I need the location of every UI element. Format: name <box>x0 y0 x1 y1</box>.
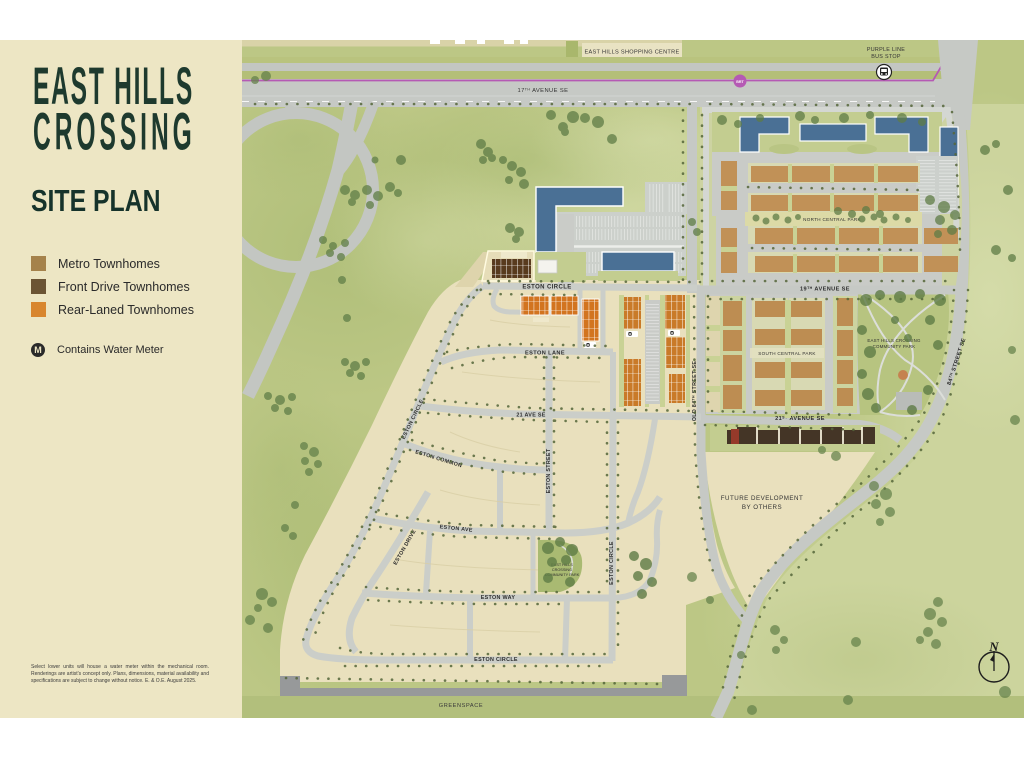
svg-text:M: M <box>629 332 632 336</box>
svg-text:BRT: BRT <box>736 80 744 84</box>
svg-text:M: M <box>587 343 590 347</box>
svg-text:21 AVE SE: 21 AVE SE <box>516 413 545 419</box>
svg-text:COMMUNITY PARK: COMMUNITY PARK <box>873 344 916 349</box>
svg-text:ESTON CIRCLE: ESTON CIRCLE <box>474 657 518 663</box>
svg-text:N: N <box>988 639 999 654</box>
svg-text:GREENSPACE: GREENSPACE <box>439 703 483 709</box>
svg-text:SOUTH CENTRAL PARK: SOUTH CENTRAL PARK <box>758 351 816 356</box>
svg-text:BY OTHERS: BY OTHERS <box>742 504 782 511</box>
svg-text:ESTON STREET: ESTON STREET <box>546 448 552 493</box>
svg-text:EAST HILLS CROSSING: EAST HILLS CROSSING <box>867 338 921 343</box>
svg-text:ESTON CIRCLE: ESTON CIRCLE <box>609 541 615 585</box>
svg-text:ESTON WAY: ESTON WAY <box>481 595 516 601</box>
svg-text:CROSSING: CROSSING <box>552 568 572 572</box>
svg-text:FUTURE DEVELOPMENT: FUTURE DEVELOPMENT <box>721 495 804 502</box>
svg-text:M: M <box>671 331 674 335</box>
svg-text:BUS STOP: BUS STOP <box>871 54 901 60</box>
svg-text:EAST HILLS SHOPPING CENTRE: EAST HILLS SHOPPING CENTRE <box>584 50 679 56</box>
svg-text:PURPLE LINE: PURPLE LINE <box>867 47 905 53</box>
svg-text:ESTON LANE: ESTON LANE <box>525 351 565 357</box>
svg-text:ESTON CIRCLE: ESTON CIRCLE <box>522 285 571 291</box>
